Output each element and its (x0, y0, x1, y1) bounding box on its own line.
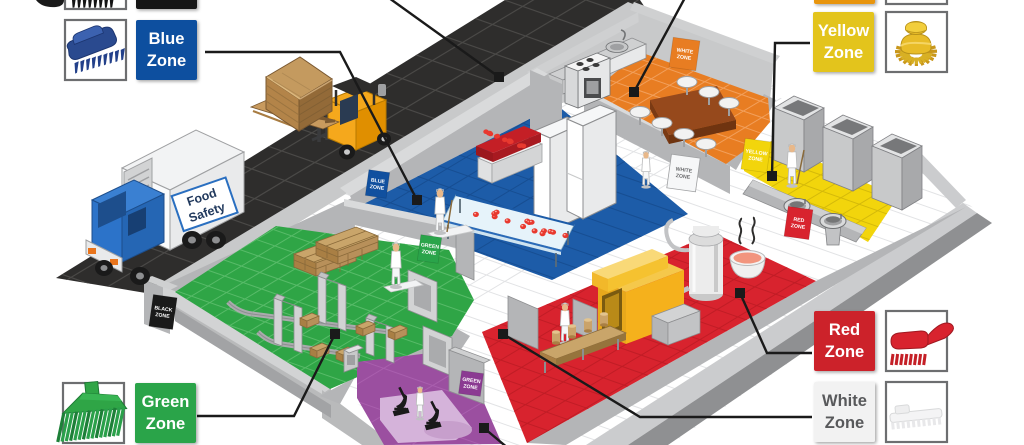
svg-text:Zone: Zone (825, 343, 864, 361)
svg-text:Zone: Zone (147, 52, 186, 70)
svg-text:Green: Green (142, 393, 190, 411)
svg-text:White: White (822, 392, 867, 410)
svg-text:Zone: Zone (824, 44, 863, 62)
svg-text:Red: Red (829, 321, 860, 339)
svg-text:Blue: Blue (149, 30, 185, 48)
svg-text:Zone: Zone (146, 415, 185, 433)
svg-text:Yellow: Yellow (818, 22, 870, 40)
svg-text:Zone: Zone (825, 414, 864, 432)
